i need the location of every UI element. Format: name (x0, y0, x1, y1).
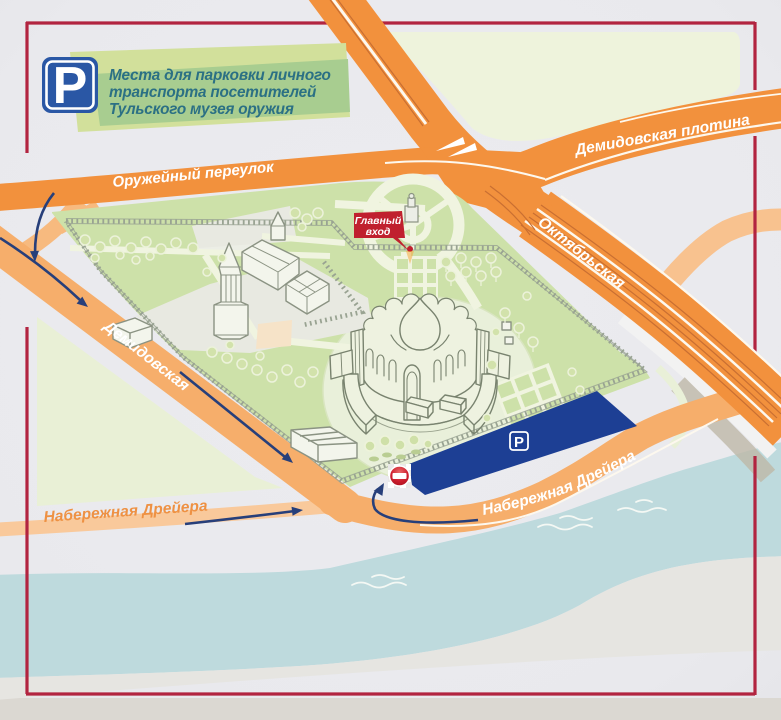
svg-text:Тульского музея оружия: Тульского музея оружия (109, 101, 294, 118)
svg-text:вход: вход (366, 226, 391, 238)
svg-text:P: P (514, 434, 524, 451)
svg-text:P: P (53, 57, 88, 115)
svg-text:транспорта посетителей: транспорта посетителей (109, 84, 317, 101)
svg-text:Места для парковки личного: Места для парковки личного (109, 67, 331, 84)
